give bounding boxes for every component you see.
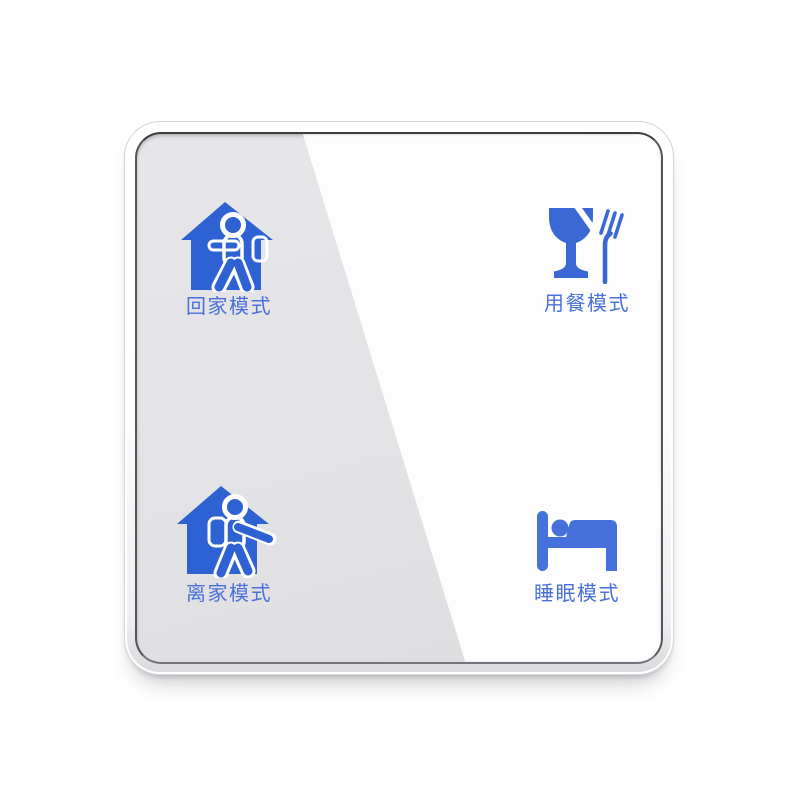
- switch-panel-frame: 回家模式 用餐模式: [124, 121, 674, 675]
- dining-icon: [547, 208, 627, 284]
- product-photo-background: 回家模式 用餐模式: [0, 0, 800, 800]
- scene-button-home[interactable]: 回家模式: [167, 202, 291, 317]
- scene-button-dining[interactable]: 用餐模式: [531, 208, 643, 314]
- return-home-icon: [181, 202, 277, 292]
- sleep-icon: [534, 509, 620, 573]
- scene-button-sleep[interactable]: 睡眠模式: [521, 509, 633, 604]
- scene-label-sleep: 睡眠模式: [534, 583, 620, 604]
- leave-home-icon: [177, 486, 281, 578]
- scene-button-away[interactable]: 离家模式: [167, 486, 291, 604]
- switch-glass-face: 回家模式 用餐模式: [135, 132, 663, 664]
- scene-label-home: 回家模式: [186, 296, 272, 317]
- scene-label-away: 离家模式: [186, 583, 272, 604]
- scene-label-dining: 用餐模式: [544, 293, 630, 314]
